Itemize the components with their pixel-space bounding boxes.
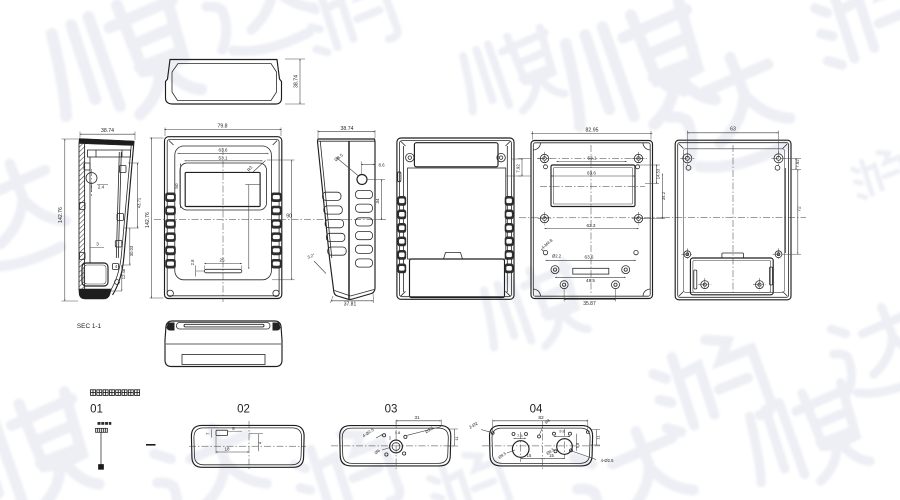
svg-text:7.6: 7.6	[517, 433, 523, 438]
svg-text:50: 50	[174, 183, 179, 189]
svg-text:79.8: 79.8	[217, 124, 227, 130]
svg-text:82.95: 82.95	[586, 127, 599, 133]
svg-text:38.74: 38.74	[293, 75, 299, 88]
svg-text:9.8: 9.8	[575, 442, 580, 448]
svg-text:15: 15	[527, 453, 532, 458]
svg-text:34.2: 34.2	[661, 191, 666, 200]
svg-text:72: 72	[797, 206, 803, 212]
svg-text:2.4: 2.4	[98, 185, 105, 190]
svg-text:9.8: 9.8	[395, 430, 401, 435]
svg-text:53.1: 53.1	[588, 156, 597, 161]
svg-text:37.81: 37.81	[344, 302, 357, 308]
svg-text:142.76: 142.76	[145, 212, 151, 228]
svg-text:63: 63	[730, 127, 736, 133]
svg-text:90: 90	[286, 214, 292, 220]
svg-text:63.3: 63.3	[587, 223, 596, 228]
svg-text:02: 02	[237, 404, 250, 416]
svg-text:2.8: 2.8	[190, 259, 195, 265]
svg-text:18: 18	[224, 446, 230, 451]
svg-text:04: 04	[530, 404, 543, 416]
svg-text:3: 3	[96, 241, 99, 246]
svg-text:Ø2.2: Ø2.2	[552, 254, 562, 259]
svg-text:15: 15	[549, 453, 554, 458]
svg-text:48.5: 48.5	[586, 278, 595, 283]
svg-text:SEC 1-1: SEC 1-1	[77, 323, 102, 330]
svg-text:7.92: 7.92	[795, 159, 800, 168]
svg-text:03: 03	[385, 404, 398, 416]
svg-text:7.92: 7.92	[516, 164, 521, 173]
svg-text:63.6: 63.6	[587, 170, 596, 175]
svg-text:34: 34	[375, 198, 381, 204]
svg-text:38.74: 38.74	[341, 126, 354, 132]
svg-text:31: 31	[414, 415, 420, 420]
svg-text:142.76: 142.76	[58, 207, 64, 223]
svg-text:01: 01	[90, 404, 103, 416]
svg-text:35.87: 35.87	[583, 301, 596, 307]
svg-text:25: 25	[219, 258, 225, 263]
svg-text:4-Ø2.5: 4-Ø2.5	[601, 458, 614, 463]
svg-text:9.8: 9.8	[559, 429, 565, 434]
svg-text:63.6: 63.6	[219, 148, 228, 153]
svg-text:14.53: 14.53	[655, 168, 660, 179]
svg-text:8.6: 8.6	[378, 162, 385, 167]
svg-text:53.1: 53.1	[219, 155, 228, 160]
svg-text:63.6: 63.6	[585, 255, 594, 260]
svg-text:38.74: 38.74	[101, 128, 114, 134]
